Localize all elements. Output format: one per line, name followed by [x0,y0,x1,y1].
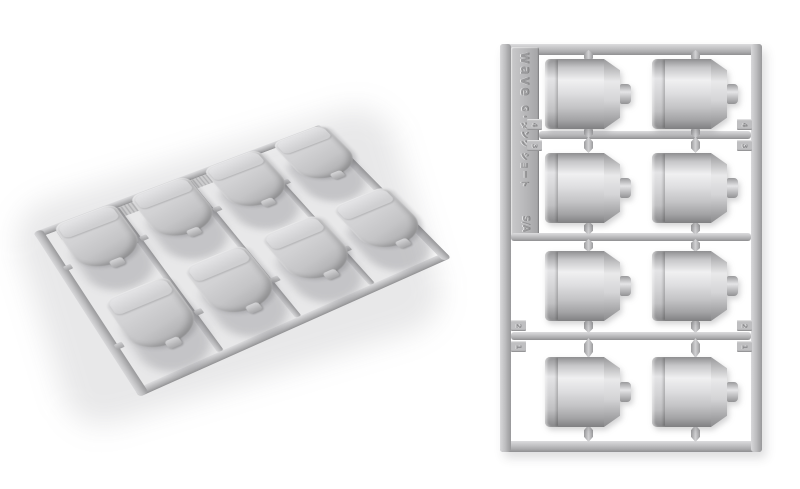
cross-rail [511,332,751,340]
tank-cone [604,59,620,129]
mold-mark: S/A [520,215,530,232]
tank-part [545,251,631,321]
part-number-tab: 1 [737,341,752,352]
tank-cap [652,357,665,427]
tank-cone [604,357,620,427]
tank-body [665,251,711,321]
part-number-tab: 1 [511,341,526,352]
part-number-tab: 2 [511,320,526,331]
tab-number: 3 [741,143,749,148]
tank-part [652,153,738,223]
tank-cone [711,59,727,129]
sprue-gate [212,205,223,212]
tank-cap [545,153,558,223]
frame-rail-left [500,44,511,452]
tank-nozzle [620,276,631,296]
part-number-tab: 3 [527,140,542,151]
tank-part [652,251,738,321]
photo-canvas: wave G・タンク ショート S/A 4 3 4 3 2 1 2 1 [0,0,800,489]
cross-rail [511,233,751,241]
tank-cap [545,59,558,129]
tank-nozzle [727,178,738,198]
cross-rail [539,131,751,139]
brand-logo: wave [518,52,533,98]
tank-cone [711,357,727,427]
tank-body [665,357,711,427]
tank-body [558,153,604,223]
frame-rail-top [500,44,762,55]
tab-number: 4 [741,122,749,127]
tank-cone [604,251,620,321]
tank-body [558,357,604,427]
part-number-tab: 3 [737,140,752,151]
tank-part [652,357,738,427]
tab-number: 1 [741,344,749,349]
tab-number: 1 [515,344,523,349]
tank-body [558,251,604,321]
tab-number: 4 [531,122,539,127]
tab-number: 2 [515,323,523,328]
tank-nozzle [620,178,631,198]
sprue-top-view: wave G・タンク ショート S/A 4 3 4 3 2 1 2 1 [497,40,765,456]
tank-nozzle [727,276,738,296]
tank-cone [604,153,620,223]
part-number-tab: 2 [737,320,752,331]
frame-rail-bottom [500,441,762,452]
tank-cone [711,153,727,223]
tank-cap [545,357,558,427]
sprue-angled-view [5,55,483,437]
tank-cap [652,251,665,321]
tank-part [545,153,631,223]
tank-part [545,357,631,427]
tank-body [558,59,604,129]
tank-part [545,59,631,129]
tank-cone [711,251,727,321]
part-number-tab: 4 [737,119,752,130]
tank-nozzle [109,256,127,268]
tank-cap [652,59,665,129]
tank-body [665,59,711,129]
tank-cap [545,251,558,321]
part-number-tab: 4 [527,119,542,130]
tank-nozzle [727,84,738,104]
tank-body [665,153,711,223]
tank-nozzle [727,382,738,402]
tank-nozzle [620,382,631,402]
tank-cap [652,153,665,223]
tank-part [652,59,738,129]
tab-number: 3 [531,143,539,148]
tank-nozzle [620,84,631,104]
frame-rail-right [751,44,762,452]
tab-number: 2 [741,323,749,328]
